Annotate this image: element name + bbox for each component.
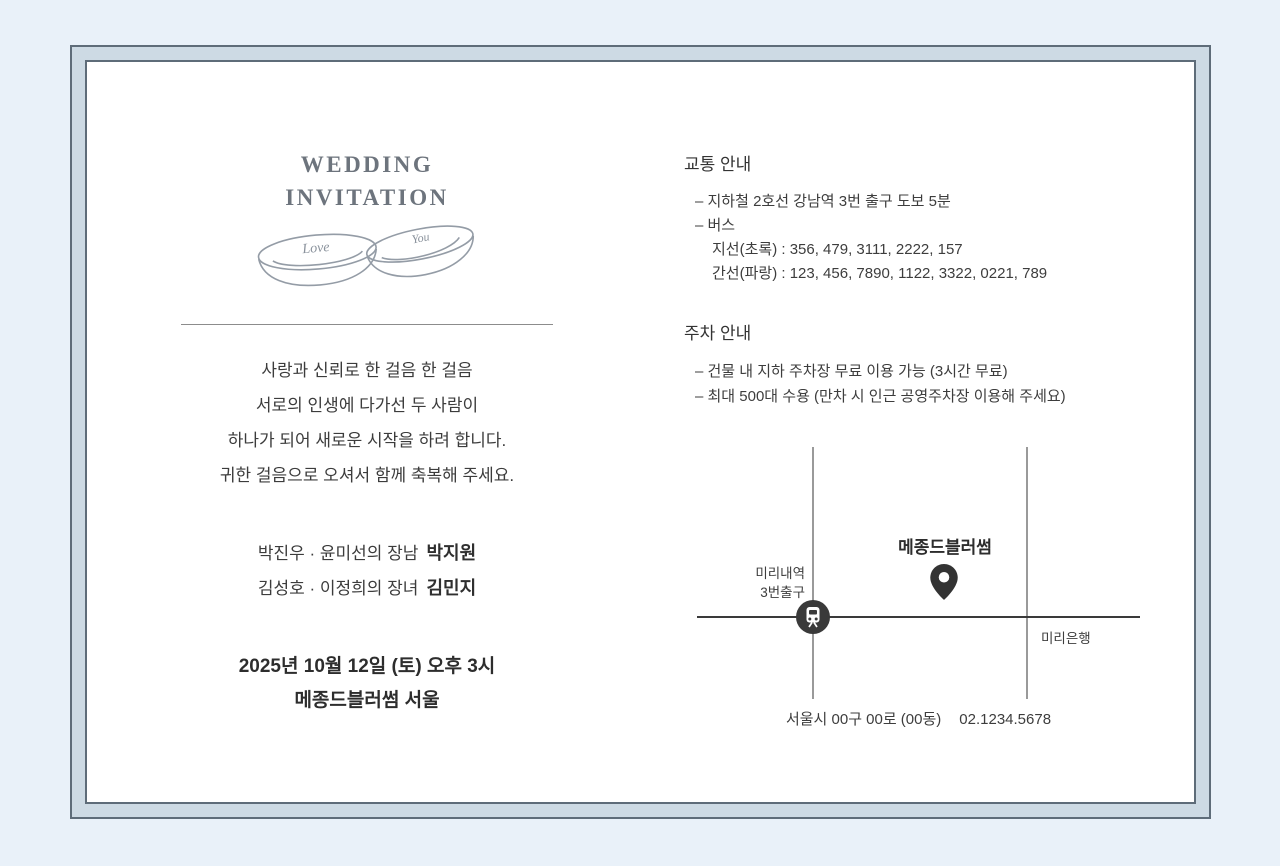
- map-bank-label: 미리은행: [1041, 627, 1091, 647]
- wedding-rings-icon: Love You: [253, 212, 493, 300]
- bus-green-lines: 지선(초록) : 356, 479, 3111, 2222, 157: [695, 238, 1047, 262]
- message-line: 귀한 걸음으로 오셔서 함께 축복해 주세요.: [141, 458, 593, 493]
- title-line-1: WEDDING: [217, 148, 517, 181]
- left-divider: [181, 324, 553, 325]
- bride-parents-label: 김성호 · 이정희의 장녀: [258, 579, 419, 598]
- train-station-icon: [796, 600, 830, 634]
- traffic-guide-heading: 교통 안내: [684, 150, 751, 175]
- message-line: 사랑과 신뢰로 한 걸음 한 걸음: [141, 353, 593, 388]
- map-road-horizontal: [697, 616, 1140, 618]
- message-line: 하나가 되어 새로운 시작을 하려 합니다.: [141, 423, 593, 458]
- bride-name: 김민지: [426, 578, 476, 598]
- venue-phone: 02.1234.5678: [959, 711, 1051, 728]
- traffic-item-subway: – 지하철 2호선 강남역 3번 출구 도보 5분: [695, 190, 1047, 214]
- bride-line: 김성호 · 이정희의 장녀김민지: [141, 571, 593, 606]
- parking-item-free: – 건물 내 지하 주차장 무료 이용 가능 (3시간 무료): [695, 359, 1066, 384]
- event-datetime-venue: 2025년 10월 12일 (토) 오후 3시 메종드블러썸 서울: [141, 650, 593, 718]
- parking-guide-list: – 건물 내 지하 주차장 무료 이용 가능 (3시간 무료) – 최대 500…: [695, 359, 1066, 409]
- venue-address-line: 서울시 00구 00로 (00동)02.1234.5678: [697, 708, 1140, 729]
- event-venue: 메종드블러썸 서울: [141, 684, 593, 718]
- traffic-guide-list: – 지하철 2호선 강남역 3번 출구 도보 5분 – 버스 지선(초록) : …: [695, 190, 1047, 286]
- title-line-2: INVITATION: [217, 181, 517, 214]
- map-station-label: 미리내역 3번출구: [701, 564, 805, 602]
- venue-address: 서울시 00구 00로 (00동): [786, 711, 941, 728]
- parents-and-couple: 박진우 · 윤미선의 장남박지원 김성호 · 이정희의 장녀김민지: [141, 536, 593, 606]
- map-pin-icon: [929, 563, 959, 601]
- invitation-canvas: WEDDING INVITATION Love You: [0, 0, 1280, 866]
- ring-engraving-you: You: [411, 229, 431, 246]
- card-content: WEDDING INVITATION Love You: [85, 60, 1196, 804]
- message-line: 서로의 인생에 다가선 두 사람이: [141, 388, 593, 423]
- event-datetime: 2025년 10월 12일 (토) 오후 3시: [141, 650, 593, 684]
- groom-parents-label: 박진우 · 윤미선의 장남: [258, 544, 419, 563]
- invitation-title: WEDDING INVITATION: [217, 148, 517, 214]
- parking-item-capacity: – 최대 500대 수용 (만차 시 인근 공영주차장 이용해 주세요): [695, 384, 1066, 409]
- invitation-message: 사랑과 신뢰로 한 걸음 한 걸음 서로의 인생에 다가선 두 사람이 하나가 …: [141, 353, 593, 493]
- parking-guide-heading: 주차 안내: [684, 319, 751, 344]
- card-frame: WEDDING INVITATION Love You: [70, 45, 1211, 819]
- map-road-vertical-right: [1026, 447, 1028, 699]
- location-map: 메종드블러썸 미리내역 3번출구 미리은행: [697, 430, 1140, 720]
- station-name: 미리내역: [701, 564, 805, 583]
- ring-engraving-love: Love: [301, 240, 330, 257]
- groom-name: 박지원: [426, 543, 476, 563]
- station-exit: 3번출구: [701, 583, 805, 602]
- map-venue-label: 메종드블러썸: [845, 533, 1045, 558]
- bus-blue-lines: 간선(파랑) : 123, 456, 7890, 1122, 3322, 022…: [695, 262, 1047, 286]
- groom-line: 박진우 · 윤미선의 장남박지원: [141, 536, 593, 571]
- map-road-vertical-left: [812, 447, 814, 699]
- traffic-item-bus: – 버스: [695, 214, 1047, 238]
